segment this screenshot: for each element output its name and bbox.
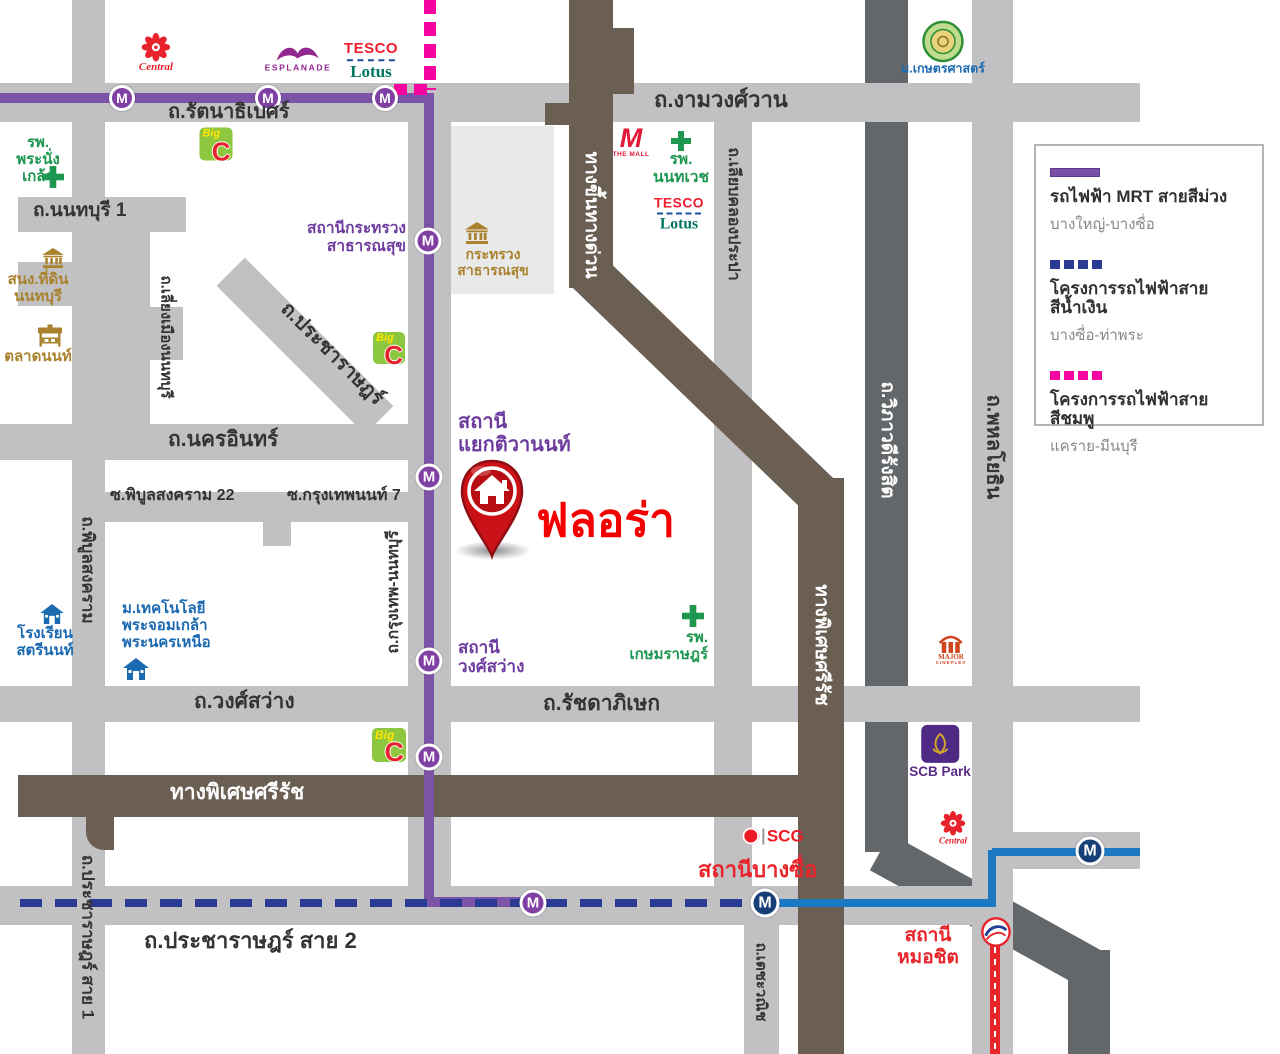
- road-label: ถ.ประชาราษฎร์ สาย 2: [144, 928, 357, 953]
- flora-label: ฟลอร่า: [536, 484, 675, 557]
- mrt-station-tiwanon: M: [416, 464, 443, 491]
- bigc-logo: Big C: [373, 332, 405, 364]
- hospital-cross-icon: [42, 166, 64, 188]
- mrt-station-krasuang: M: [415, 228, 442, 255]
- hospital-cross-icon: [671, 131, 691, 151]
- road-label: ถ.งามวงศ์วาน: [654, 87, 788, 112]
- expressway-arm-left: [545, 103, 575, 125]
- legend-title: โครงการรถไฟฟ้าสายสีน้ำเงิน: [1050, 279, 1248, 318]
- road-label: ถ.นครอินทร์: [168, 428, 278, 452]
- hospital-cross-icon: [682, 605, 704, 627]
- pink-line-project-vertical: [424, 0, 436, 90]
- central-logo: Central: [139, 32, 173, 74]
- major-cineplex-logo: MAJOR CINEPLEX: [936, 634, 967, 666]
- bts-red-line-center-dash: [994, 947, 996, 1052]
- hospital-label: รพ. เกษมราษฎร์: [614, 629, 708, 663]
- location-pin-icon: [452, 456, 532, 565]
- road-label: ซ.พิบูลสงคราม 22: [110, 487, 234, 505]
- road-soi-stub: [263, 520, 291, 546]
- bts-logo: [980, 916, 1012, 948]
- mrt-station-wongsawang: M: [416, 648, 443, 675]
- station-label: สถานี วงศ์สว่าง: [458, 638, 524, 677]
- mrt-station-taopoon: M: [520, 890, 547, 917]
- legend-subtitle: บางใหญ่-บางซื่อ: [1050, 212, 1248, 236]
- scb-park-logo: SCB Park: [909, 725, 971, 779]
- road-label: ถ.เตชะวณิช: [752, 943, 769, 1022]
- blue-line-project-dashed: [20, 899, 768, 907]
- mrt-purple-line-vertical: [424, 93, 434, 907]
- mrt-station-east: M: [1076, 837, 1105, 866]
- road-label: ถ.รัชดาภิเษก: [543, 692, 660, 716]
- road-label: ถ.ประชาราษฎร์ สาย 1: [78, 855, 97, 1019]
- legend-subtitle: บางซื่อ-ท่าพระ: [1050, 323, 1248, 347]
- road-pracharat-diagonal: [217, 258, 394, 435]
- station-label-mochit: สถานี หมอชิต: [891, 925, 965, 968]
- pink-dashed-line-swatch: [1050, 371, 1104, 380]
- road-label: ถ.เลี่ยงเมืองนนทบุรี: [157, 275, 174, 398]
- mrt-station: M: [109, 85, 135, 111]
- station-label-bangsue: สถานีบางซื่อ: [698, 857, 817, 882]
- ministry-label: กระทรวง สาธารณสุข: [440, 247, 546, 279]
- legend-title: รถไฟฟ้า MRT สายสีม่วง: [1050, 187, 1248, 207]
- university-label: ม.เทคโนโลยี พระจอมเกล้า พระนครเหนือ: [122, 600, 211, 651]
- bigc-logo: Big C: [372, 728, 406, 762]
- ministry-building-icon: [465, 222, 489, 244]
- the-mall-logo: M THE MALL: [613, 125, 650, 159]
- expressway-hook: [86, 808, 114, 850]
- expressway-label: ทางพิเศษศรีรัช: [170, 781, 304, 805]
- tesco-lotus-logo: TESCO Lotus: [344, 41, 398, 81]
- road-label: ถ.วงศ์สว่าง: [194, 690, 295, 714]
- market-label: ตลาดนนท์: [0, 348, 76, 365]
- expressway-diagonal: [569, 253, 837, 514]
- expressway-arm-right: [612, 28, 634, 94]
- esplanade-logo: ESPLANADE: [265, 44, 332, 73]
- station-label: สถานีกระทรวง สาธารณสุข: [286, 220, 406, 255]
- blue-line-solid-1: [765, 899, 996, 907]
- expressway-sirat-vertical: [798, 478, 844, 1054]
- central-logo: Central: [939, 810, 967, 845]
- mrt-station-bangsue: M: [751, 889, 780, 918]
- tesco-lotus-logo: TESCO Lotus: [654, 197, 704, 234]
- blue-dashed-line-swatch: [1050, 260, 1104, 269]
- university-icon: [123, 658, 149, 680]
- legend: รถไฟฟ้า MRT สายสีม่วง บางใหญ่-บางซื่อ โค…: [1034, 144, 1264, 426]
- market-icon: [37, 325, 63, 348]
- road-label: ซ.กรุงเทพนนท์ 7: [287, 487, 401, 505]
- scg-logo: SCG: [742, 828, 803, 845]
- ramp-viphavadi-tail: [1068, 950, 1110, 1054]
- kasetsart-university-logo: ม.เกษตรศาสตร์: [901, 20, 985, 75]
- school-label: โรงเรียน สตรีนนท์: [10, 625, 80, 659]
- road-label: ถ.กรุงเทพ-นนทบุรี: [385, 530, 403, 653]
- legend-item-purple: รถไฟฟ้า MRT สายสีม่วง บางใหญ่-บางซื่อ: [1050, 168, 1248, 236]
- bigc-logo: Big C: [200, 128, 233, 161]
- expressway-label: ทางขึ้นทางด่วน: [580, 152, 602, 279]
- station-label: สถานี แยกติวานนท์: [458, 411, 571, 457]
- legend-item-blue: โครงการรถไฟฟ้าสายสีน้ำเงิน บางซื่อ-ท่าพร…: [1050, 260, 1248, 347]
- road-label: ถ.วิภาวดีรังสิต: [876, 381, 898, 498]
- legend-subtitle: แคราย-มีนบุรี: [1050, 434, 1248, 458]
- mrt-station: M: [416, 744, 443, 771]
- legend-item-pink: โครงการรถไฟฟ้าสายสีชมพู แคราย-มีนบุรี: [1050, 371, 1248, 458]
- road-label: ถ.นนทบุรี 1: [33, 200, 126, 222]
- road-label: ถ.เลียบคลองประปา: [724, 147, 742, 280]
- government-building-icon: [42, 248, 64, 268]
- landoffice-label: สนง.ที่ดิน นนทบุรี: [2, 271, 74, 305]
- blue-line-solid-vertical: [988, 850, 996, 907]
- legend-title: โครงการรถไฟฟ้าสายสีชมพู: [1050, 390, 1248, 429]
- school-icon: [40, 604, 64, 624]
- road-label: ถ.รัตนาธิเบศร์: [168, 101, 289, 124]
- hospital-label: รพ. นนทเวช: [640, 151, 722, 186]
- purple-solid-line-swatch: [1050, 168, 1100, 177]
- map-canvas: รถไฟฟ้า MRT สายสีม่วง บางใหญ่-บางซื่อ โค…: [0, 0, 1280, 1054]
- mrt-station: M: [372, 85, 398, 111]
- road-label: ถ.พิบูลสงคราม: [78, 516, 97, 623]
- expressway-label: ทางพิเศษศรีรัช: [810, 584, 832, 705]
- pink-line-project-horizontal: [394, 84, 432, 95]
- blue-line-solid-2: [992, 848, 1140, 856]
- road-label: ถ.พหลโยธิน: [982, 395, 1005, 500]
